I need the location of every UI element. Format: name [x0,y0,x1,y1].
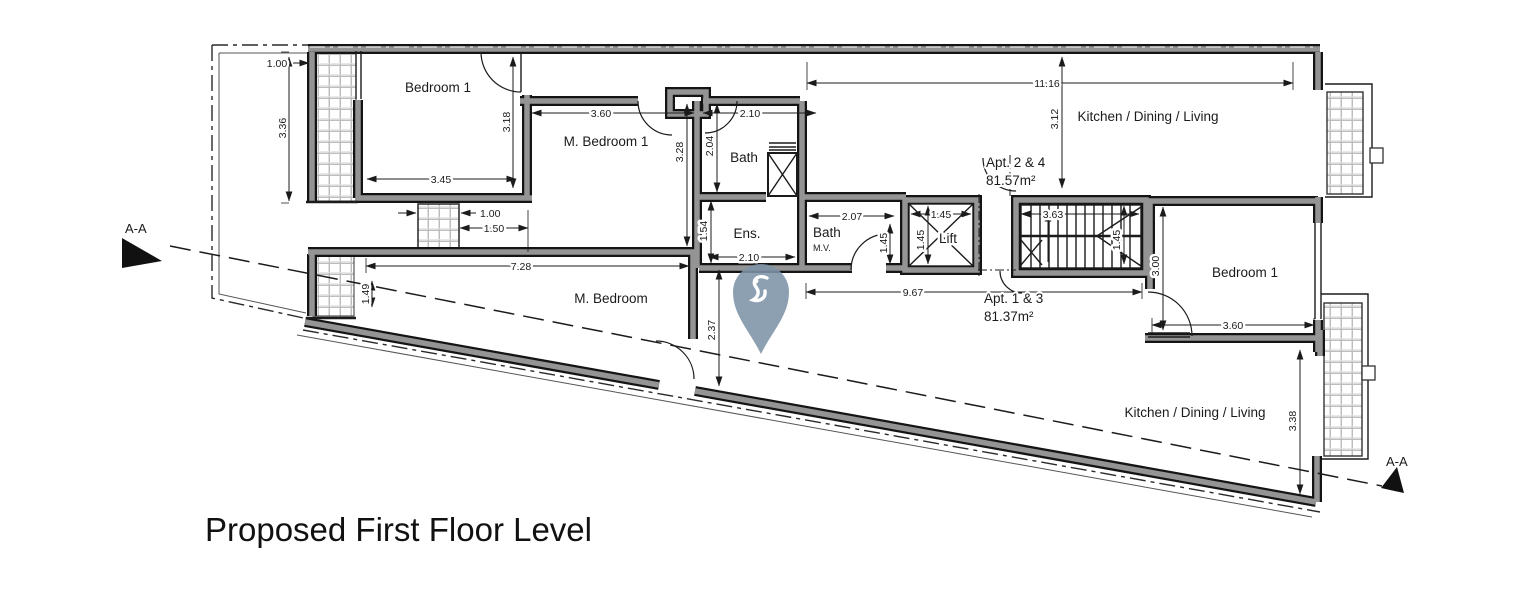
dim-bath-w-top: 2.10 [740,108,761,120]
door-arc-bedroom1-left [481,52,521,92]
watermark-pin [733,264,789,354]
boundary-dashdot-bottom [303,330,1320,512]
dim-ens-w: 2.10 [739,252,760,264]
drawing-title: Proposed First Floor Level [205,511,592,548]
floor-plan-page: A-A A-A 1.00 3.36 3 [0,0,1525,610]
dim-bath-h: 2.04 [704,136,716,157]
dim-mbed-d: 2.37 [706,320,718,341]
dim-mbed-w: 7.28 [511,261,532,273]
dim-balc-l-w: 1.00 [267,58,288,70]
room-label-lift: Lift [939,231,957,246]
dim-balc-l-h: 3.36 [277,118,289,139]
lightwell-hatch [418,204,459,248]
vent-grille-lines [769,143,796,150]
dim-stair-w: 3.63 [1043,209,1064,221]
room-label-bath-mv: Bath [813,225,841,240]
apt24-area: 81.57m² [986,173,1036,188]
dim-kit-t-w: 11.16 [1034,78,1060,90]
room-label-bath: Bath [730,150,758,165]
balcony-top-left-hatch [313,52,356,201]
section-label-left: A-A [125,221,147,236]
watermark-glyph-dot [754,279,759,284]
room-label-m-bedroom1: M. Bedroom 1 [564,134,649,149]
pavement-line [297,335,1312,517]
room-label-kitchen-bottom: Kitchen / Dining / Living [1124,405,1265,420]
section-triangle-left [122,238,162,268]
balcony-tab-top [1370,148,1383,163]
dim-mbr1-w: 3.60 [591,108,612,120]
room-label-m-bedroom: M. Bedroom [574,291,648,306]
balcony-bottom-right-hatch [1324,303,1362,456]
dim-stair-h: 1.45 [1111,230,1123,251]
apt24-name: Apt. 2 & 4 [986,155,1046,170]
window-right [1315,223,1321,319]
dim-mbr1-h: 3.28 [674,142,686,163]
floor-plan-canvas: A-A A-A 1.00 3.36 3 [0,0,1525,610]
dim-mbed-balc: 1.49 [360,284,372,305]
dim-bed1r-w: 3.60 [1223,320,1244,332]
dim-bathmv-d: 1.45 [878,233,890,254]
dim-bed1-h: 3.18 [501,112,513,133]
apt13-area: 81.37m² [984,309,1034,324]
room-label-bath-mv-note: M.V. [813,243,831,253]
dim-kit-b-h: 3.38 [1287,411,1299,432]
dim-bed1r-h: 3.00 [1150,256,1162,277]
dim-bathmv-w: 2.07 [842,211,863,223]
dim-bed1-w: 3.45 [431,174,452,186]
section-label-right: A-A [1386,454,1408,469]
dim-kit-t-h: 3.12 [1049,109,1061,130]
dim-lw-w: 1.00 [480,208,501,220]
dim-lift-w: 1.45 [931,209,952,221]
dim-hall-w: 9.67 [903,287,924,299]
apt13-name: Apt. 1 & 3 [984,291,1043,306]
room-label-ens: Ens. [733,226,760,241]
dim-lw-w2: 1.50 [484,223,505,235]
balcony-tab-bottom [1362,366,1375,380]
door-arc-bedroom1-right [1148,292,1192,336]
boundary-dashdot-line [212,45,312,319]
window-left [356,51,361,99]
dim-ens-h: 1.54 [698,221,710,242]
dim-lift-h: 1.45 [915,230,927,251]
balcony-bottom-left-hatch [313,254,354,316]
room-label-kitchen-top: Kitchen / Dining / Living [1077,109,1218,124]
room-label-bedroom1-right: Bedroom 1 [1212,265,1278,280]
boundary-inner-line [219,53,308,313]
section-triangle-right [1381,467,1404,493]
balcony-top-right-hatch [1327,92,1363,194]
room-label-bedroom1-left: Bedroom 1 [405,80,471,95]
